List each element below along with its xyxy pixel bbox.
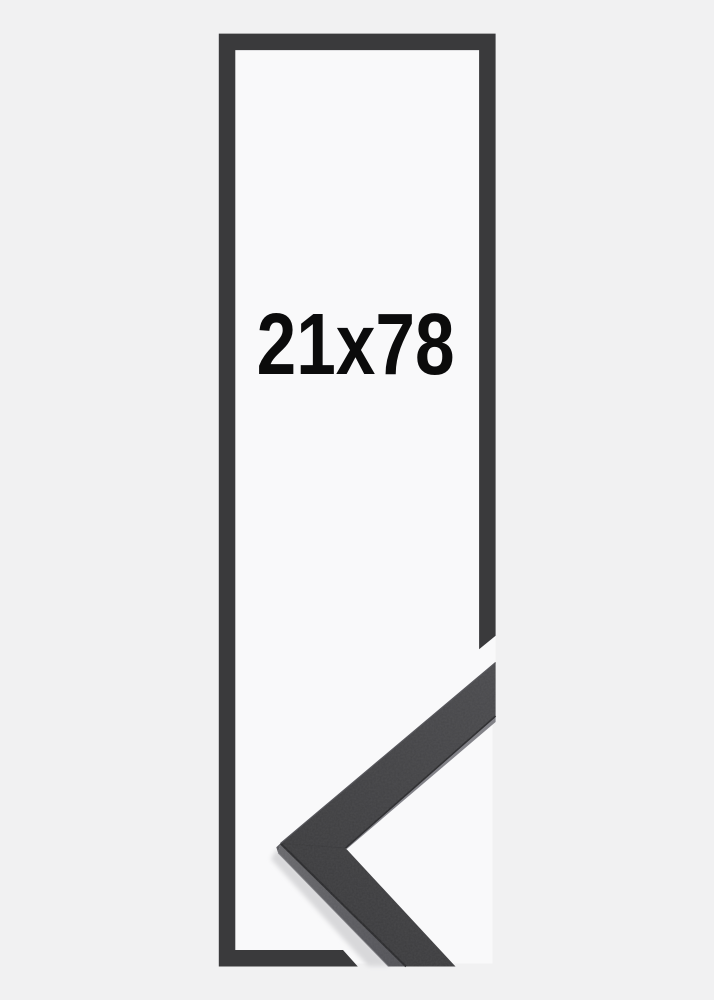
svg-text:21x78: 21x78	[257, 295, 455, 393]
